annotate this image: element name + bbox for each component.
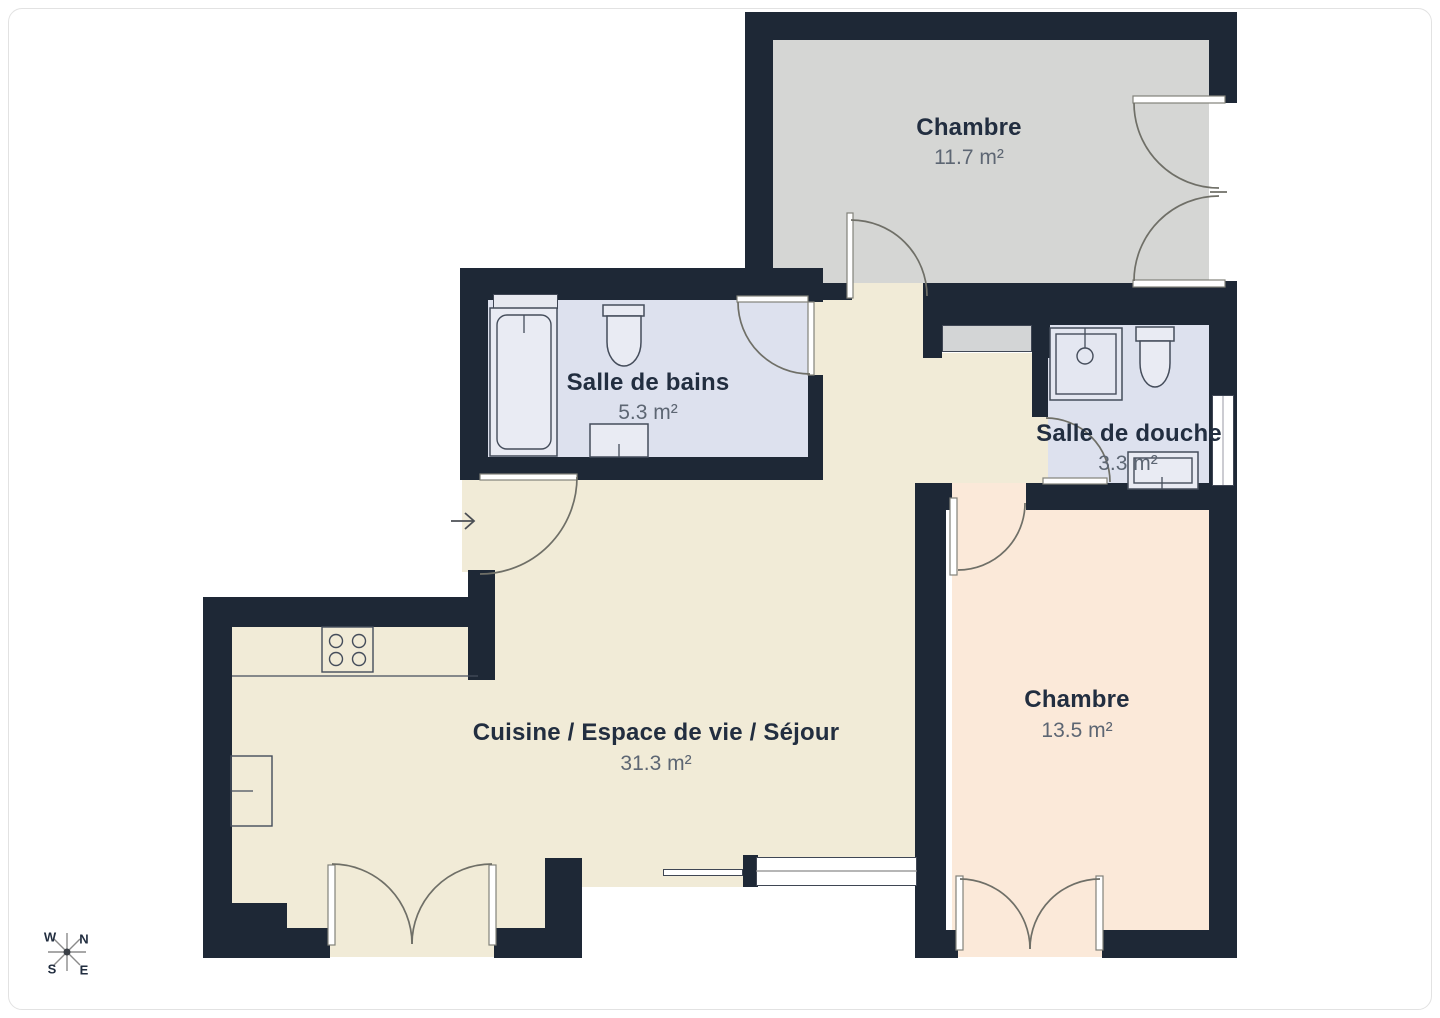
chambre-1-door-arc: [851, 220, 927, 296]
living-french-door-arc-left: [332, 864, 412, 944]
room-label-chambre-1: Chambre: [916, 114, 1021, 142]
living-french-door-leaf-left: [328, 865, 335, 945]
stove-burner-4: [353, 653, 366, 666]
room-area-chambre-1: 11.7 m²: [934, 146, 1004, 170]
chambre-1-french-door-arc-top: [1134, 103, 1219, 188]
chambre-1-french-door-arc-bottom: [1134, 196, 1219, 281]
toilet-bains-tank: [603, 305, 644, 316]
compass-label-north: N: [79, 932, 88, 947]
room-label-cuisine-sejour: Cuisine / Espace de vie / Séjour: [473, 719, 840, 747]
compass-label-east: E: [80, 963, 89, 978]
room-area-salle-de-bains: 5.3 m²: [618, 401, 678, 425]
stove: [322, 627, 373, 672]
chambre-2-french-door-leaf-right: [1096, 876, 1103, 950]
entry-door-leaf: [480, 474, 577, 480]
room-label-salle-de-douche: Salle de douche: [1036, 420, 1222, 448]
floor-plan: Chambre 11.7 m² Salle de bains 5.3 m² Sa…: [0, 0, 1440, 1018]
chambre-2-french-door-leaf-left: [956, 876, 963, 950]
douche-door-leaf: [1043, 478, 1107, 484]
entry-door-arc: [480, 477, 577, 574]
living-french-door-leaf-right: [489, 865, 496, 945]
plan-linework: [0, 0, 1440, 1018]
chambre-2-french-door-arc-right: [1030, 879, 1100, 949]
chambre-2-french-door-arc-left: [960, 879, 1030, 949]
chambre-1-french-door-leaf-bottom: [1133, 280, 1225, 287]
room-area-chambre-2: 13.5 m²: [1041, 719, 1112, 743]
toilet-douche-bowl: [1140, 341, 1170, 387]
chambre-1-french-door-leaf-top: [1133, 96, 1225, 103]
toilet-douche-tank: [1136, 327, 1174, 341]
stove-burner-2: [353, 635, 366, 648]
chambre-2-door-leaf: [950, 498, 957, 575]
living-french-door-arc-right: [412, 864, 492, 944]
entry-arrow-icon: [451, 513, 474, 529]
bains-door-arc: [738, 302, 810, 374]
compass-label-west: W: [44, 930, 56, 945]
stove-burner-3: [330, 653, 343, 666]
toilet-bains-bowl: [607, 316, 641, 366]
room-area-cuisine-sejour: 31.3 m²: [620, 752, 691, 776]
chambre-2-door-arc: [958, 503, 1025, 570]
room-label-salle-de-bains: Salle de bains: [567, 369, 730, 397]
chambre-1-door-leaf: [847, 213, 853, 298]
bains-door-leaf-closed: [808, 302, 814, 375]
compass-label-south: S: [48, 962, 57, 977]
bains-door-leaf-open: [737, 296, 808, 302]
room-area-salle-de-douche: 3.3 m²: [1098, 452, 1158, 476]
stove-burner-1: [330, 635, 343, 648]
room-label-chambre-2: Chambre: [1024, 686, 1129, 714]
